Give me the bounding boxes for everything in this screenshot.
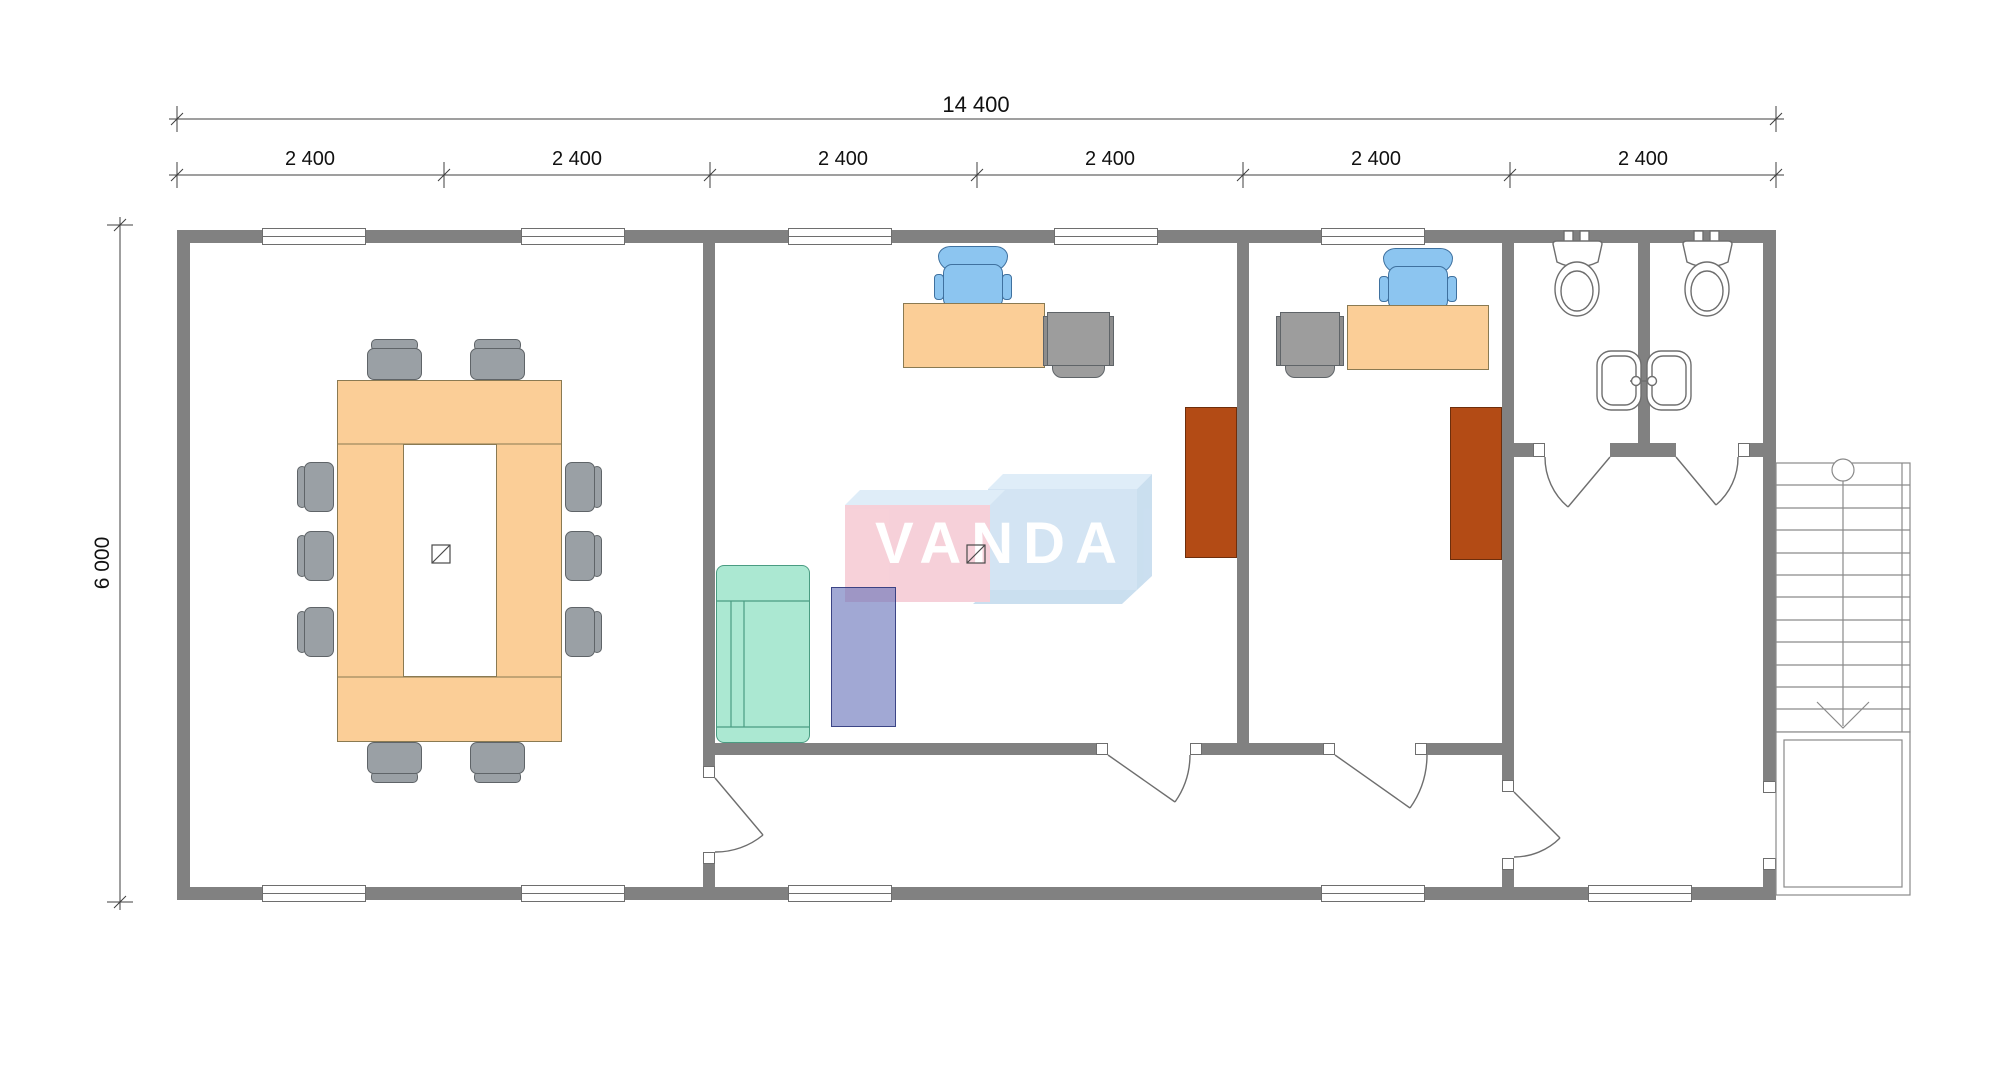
wall-office2-wc — [1502, 870, 1514, 887]
door-jamb — [1096, 743, 1108, 755]
wall-wc-front — [1610, 443, 1676, 457]
cabinet — [1280, 312, 1340, 366]
door-jamb — [1502, 858, 1514, 870]
chair — [304, 531, 334, 581]
dimension-bay: 2 400 — [527, 148, 627, 171]
wall-corridor — [703, 743, 1108, 755]
wall-top — [177, 230, 1776, 243]
wall-right — [1763, 243, 1776, 793]
office-chair — [943, 264, 1003, 308]
chair — [565, 531, 595, 581]
wall-corridor — [1190, 743, 1335, 755]
dimension-total-width: 14 400 — [876, 92, 1076, 118]
door-jamb — [1763, 858, 1776, 870]
wall-right — [1763, 870, 1776, 887]
window — [1588, 885, 1692, 902]
window — [262, 885, 366, 902]
door-jamb — [1533, 443, 1545, 457]
window — [788, 228, 892, 245]
door-jamb — [703, 852, 715, 864]
window — [1321, 228, 1425, 245]
office-chair — [1388, 266, 1448, 310]
wall-conference-office1 — [703, 243, 715, 766]
chair — [565, 462, 595, 512]
dimension-bay: 2 400 — [260, 148, 360, 171]
wall-conference-office1 — [703, 864, 715, 887]
wall-office2-wc — [1502, 243, 1514, 780]
floor-plan: VANDA — [0, 0, 2000, 1076]
wall-wc-divider — [1638, 243, 1650, 457]
sofa — [716, 565, 810, 743]
tall-cabinet — [1185, 407, 1237, 558]
wall-bottom — [177, 887, 1776, 900]
chair — [470, 742, 525, 774]
wall-wc-front — [1750, 443, 1763, 457]
window — [1054, 228, 1158, 245]
wall-left — [177, 243, 190, 887]
chair — [367, 742, 422, 774]
office-chair-arm — [1002, 274, 1012, 300]
door-jamb — [1323, 743, 1335, 755]
desk — [903, 303, 1045, 368]
window — [262, 228, 366, 245]
chair — [367, 348, 422, 380]
wall-corridor — [1427, 743, 1514, 755]
window — [788, 885, 892, 902]
chair — [565, 607, 595, 657]
window — [521, 885, 625, 902]
window — [1321, 885, 1425, 902]
wall-wc-front — [1514, 443, 1533, 457]
dimension-bay: 2 400 — [1326, 148, 1426, 171]
dimension-bay: 2 400 — [793, 148, 893, 171]
dimension-bay: 2 400 — [1593, 148, 1693, 171]
vanda-logo-text: VANDA — [856, 510, 1146, 574]
door-jamb — [1502, 780, 1514, 792]
conference-table-opening — [403, 444, 497, 677]
door-jamb — [1190, 743, 1202, 755]
chair — [304, 462, 334, 512]
dimension-bay: 2 400 — [1060, 148, 1160, 171]
window — [521, 228, 625, 245]
door-jamb — [1738, 443, 1750, 457]
dimension-total-height: 6 000 — [91, 503, 117, 623]
door-jamb — [703, 766, 715, 778]
desk — [1347, 305, 1489, 370]
tall-cabinet — [1450, 407, 1502, 560]
door-jamb — [1415, 743, 1427, 755]
coffee-table — [831, 587, 896, 727]
door-jamb — [1763, 781, 1776, 793]
chair — [304, 607, 334, 657]
wall-office1-office2 — [1237, 243, 1249, 755]
office-chair-arm — [1447, 276, 1457, 302]
chair — [470, 348, 525, 380]
cabinet — [1047, 312, 1110, 366]
